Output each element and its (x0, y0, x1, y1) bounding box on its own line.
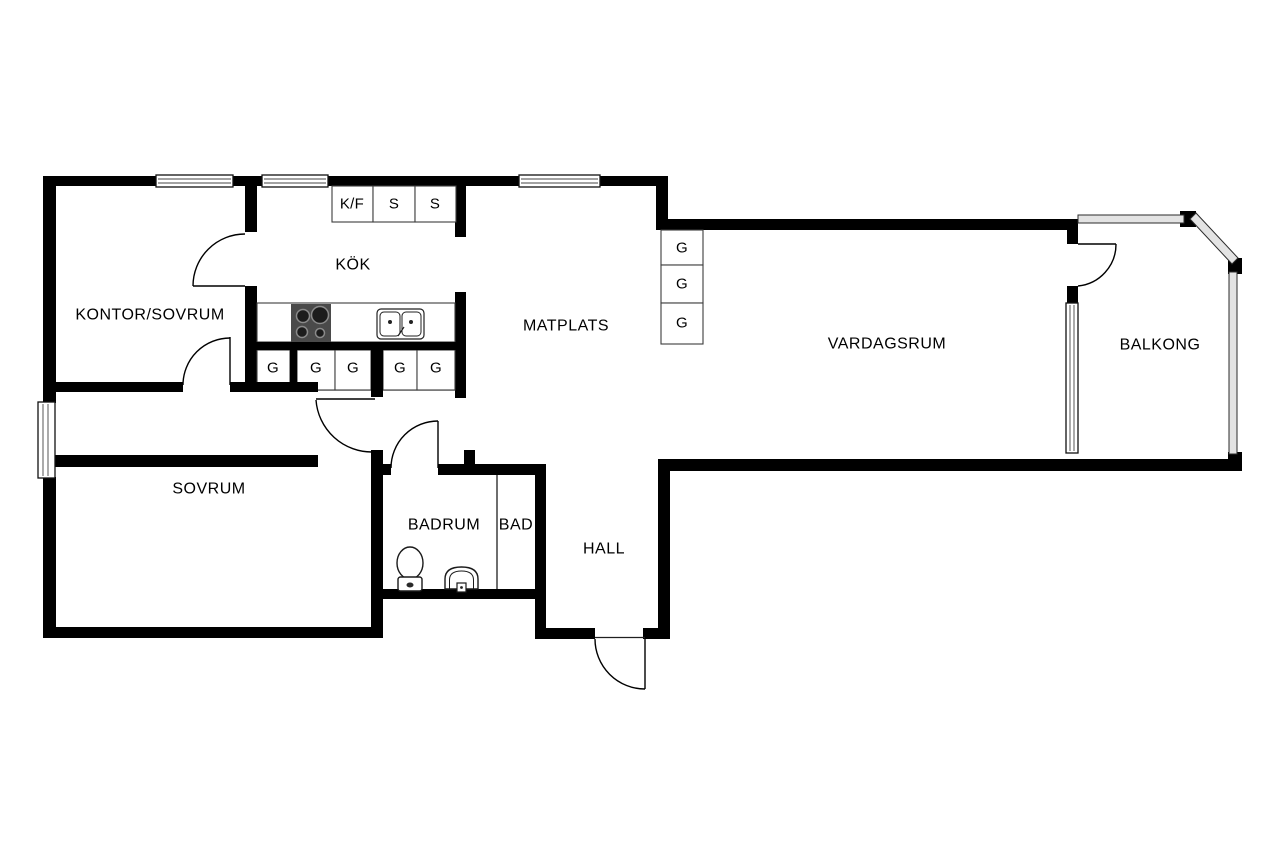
door-kontor-corridor (183, 337, 230, 385)
washbasin (445, 567, 478, 592)
wall-left-lower (43, 477, 56, 638)
wall-vardagsrum-top (656, 219, 1078, 230)
room-label-kok: KÖK (335, 256, 370, 274)
room-label-badrum: BADRUM (408, 517, 480, 534)
label-closet-1: S (389, 196, 399, 213)
room-label-sovrum: SOVRUM (172, 481, 245, 498)
door-arc (1078, 244, 1116, 286)
window-kontor (156, 175, 233, 187)
door-arc (391, 421, 438, 468)
wall-balkong-door-top (1067, 219, 1078, 244)
wall-badrum-top-right (438, 464, 546, 475)
room-label-vardagsrum: VARDAGSRUM (828, 336, 947, 353)
wall-kontor-bottom-left (44, 382, 183, 392)
wall-sovrum-top (44, 455, 318, 467)
room-label-balkong: BALKONG (1120, 337, 1201, 354)
label-wardrobe-row-2: G (310, 360, 322, 377)
balcony-corner-bottomright (1228, 452, 1242, 471)
door-arc (316, 400, 373, 452)
cabinet-boxes (257, 186, 703, 390)
wall-tooth-badrum-top (464, 450, 475, 465)
door-kontor-kok (193, 234, 245, 286)
burner (297, 310, 310, 323)
label-wardrobe-col-1: G (676, 240, 688, 257)
wall-kok-right-upper (455, 186, 466, 237)
label-wardrobe-row-5: G (430, 360, 442, 377)
balcony-railing-top (1078, 215, 1184, 223)
kitchen-sink (377, 309, 424, 339)
window-kok (262, 175, 328, 187)
wall-bad-right (535, 464, 546, 639)
door-balkong (1078, 244, 1116, 286)
wall-badrum-top-left (383, 464, 391, 475)
wall-sovrum-bottom (43, 627, 383, 638)
label-wardrobe-row-4: G (394, 360, 406, 377)
room-labels: KONTOR/SOVRUM KÖK MATPLATS VARDAGSRUM BA… (75, 256, 1200, 558)
label-wardrobe-col-3: G (676, 315, 688, 332)
burner (316, 329, 325, 338)
label-wardrobe-col-2: G (676, 276, 688, 293)
wall-hall-right (658, 459, 670, 639)
kitchen-counter (257, 303, 455, 342)
burner (312, 307, 329, 324)
balcony-railings (1078, 213, 1238, 454)
door-arc (193, 234, 245, 286)
room-label-kontor-sovrum: KONTOR/SOVRUM (75, 307, 224, 324)
door-entry (595, 639, 645, 689)
room-label-bad: BAD (499, 517, 533, 534)
balcony-railing-diagonal (1190, 213, 1238, 264)
window-balkong (1066, 303, 1078, 453)
stove (291, 304, 331, 342)
room-label-matplats: MATPLATS (523, 318, 609, 335)
room-label-hall: HALL (583, 541, 625, 558)
wall-vardagsrum-bottom (658, 459, 1242, 471)
label-wardrobe-row-3: G (347, 360, 359, 377)
door-corridor-passage (316, 399, 375, 452)
toilet (397, 547, 423, 591)
outer-walls (43, 176, 1242, 639)
balcony-railing-right (1229, 272, 1237, 454)
bathroom-fixtures (397, 547, 478, 592)
wall-left-upper (43, 176, 56, 403)
floorplan-canvas: KONTOR/SOVRUM KÖK MATPLATS VARDAGSRUM BA… (0, 0, 1280, 853)
wall-balkong-door-mid (1067, 286, 1078, 303)
label-wardrobe-row-1: G (267, 360, 279, 377)
wall-sovrum-badrum-divider (371, 450, 383, 638)
door-arc (595, 639, 645, 689)
door-badrum (391, 421, 438, 468)
window-matplats (519, 175, 600, 187)
floorplan-drawing: KONTOR/SOVRUM KÖK MATPLATS VARDAGSRUM BA… (0, 0, 1280, 853)
door-arc (183, 338, 230, 385)
burner (297, 327, 308, 338)
wall-hall-bottom-left (535, 628, 595, 639)
label-fridge-freezer: K/F (340, 196, 364, 213)
label-closet-2: S (430, 196, 440, 213)
wall-kontor-kok-lower (245, 286, 257, 392)
wall-kontor-kok-upper (245, 186, 257, 232)
window-sovrum (38, 402, 55, 478)
